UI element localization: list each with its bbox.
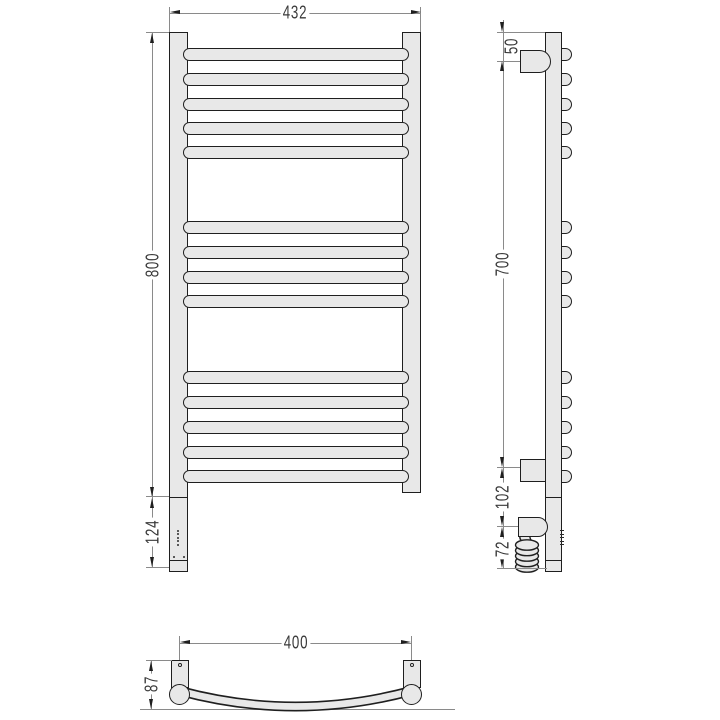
led-dot (177, 530, 179, 532)
bottom-left-post-section (169, 684, 190, 705)
led-dash (560, 534, 564, 535)
towel-bar (183, 246, 409, 259)
bar-end (562, 122, 572, 135)
bar-end (562, 48, 572, 61)
towel-bar (183, 73, 409, 86)
side-bottom-offset-label: 102 (494, 483, 513, 512)
bar-end (562, 371, 572, 384)
led-dot (177, 537, 179, 539)
bar-end (562, 221, 572, 234)
power-connection-box (518, 517, 548, 537)
led-dot (177, 533, 179, 535)
towel-bar (183, 470, 409, 483)
bar-end (562, 396, 572, 409)
dim-arrow (150, 487, 154, 497)
side-lower-bracket (520, 459, 547, 482)
bottom-width-label: 400 (281, 634, 310, 653)
mount-hole (410, 663, 414, 667)
mount-hole (178, 663, 182, 667)
dim-arrow (150, 557, 154, 567)
dim-arrow (500, 468, 504, 478)
housing-end-cap (169, 560, 188, 572)
dim-arrow (500, 61, 504, 71)
towel-bar (183, 271, 409, 284)
heating-element-housing (169, 497, 188, 562)
side-post (545, 32, 562, 498)
bar-end (562, 295, 572, 308)
heater-height-label: 124 (143, 518, 162, 547)
dim-arrow (500, 527, 504, 537)
bottom-right-post-section (401, 684, 422, 705)
dim-arrow (500, 516, 504, 526)
towel-bar (183, 446, 409, 459)
dim-arrow (500, 457, 504, 467)
towel-bar (183, 396, 409, 409)
towel-bar (183, 98, 409, 111)
dim-arrow (411, 10, 421, 14)
towel-bar (183, 295, 409, 308)
led-dash (560, 537, 564, 538)
led-dash (560, 544, 564, 545)
extension-line (497, 568, 547, 569)
side-upper-bracket (520, 50, 551, 73)
bar-end (562, 73, 572, 86)
dim-arrow (149, 699, 153, 709)
dim-arrow (150, 33, 154, 43)
towel-bar (183, 221, 409, 234)
extension-line (497, 32, 545, 33)
bar-end (562, 246, 572, 259)
bar-end (562, 146, 572, 159)
bar-end (562, 446, 572, 459)
bar-end (562, 98, 572, 111)
dim-arrow (149, 661, 153, 671)
led-dot (183, 556, 185, 558)
dim-arrow (170, 10, 180, 14)
led-dot (177, 540, 179, 542)
bottom-depth-label: 87 (142, 674, 161, 695)
led-dash (560, 541, 564, 542)
dim-arrow (401, 640, 411, 644)
front-width-label: 432 (281, 4, 310, 23)
bar-end (562, 421, 572, 434)
towel-rail-technical-drawing: 432 800 124 (0, 0, 720, 720)
led-dot (173, 556, 175, 558)
towel-bar (183, 48, 409, 61)
towel-bar (183, 122, 409, 135)
dim-arrow (150, 498, 154, 508)
towel-bar (183, 146, 409, 159)
side-top-offset-label: 50 (503, 38, 522, 54)
led-dash (560, 530, 564, 531)
side-end-cap (545, 560, 562, 572)
dim-arrow (500, 22, 504, 32)
towel-bar (183, 421, 409, 434)
towel-bar (183, 371, 409, 384)
led-dot (177, 544, 179, 546)
side-bracket-span-label: 700 (494, 250, 513, 279)
dim-arrow (180, 640, 190, 644)
side-cable-length-label: 72 (494, 539, 513, 560)
bar-end (562, 271, 572, 284)
front-height-label: 800 (143, 251, 162, 280)
bar-end (562, 470, 572, 483)
